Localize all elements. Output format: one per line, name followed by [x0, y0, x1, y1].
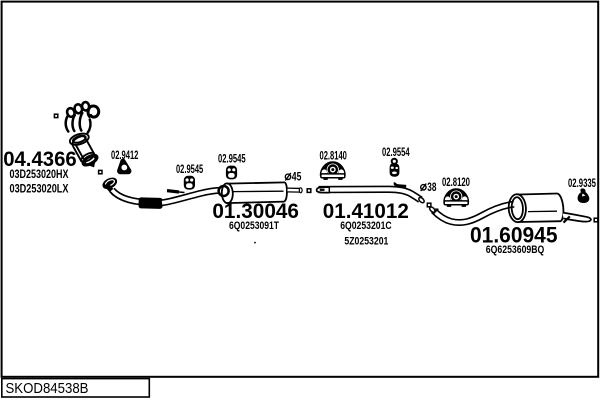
svg-text:02.9554: 02.9554 — [382, 145, 410, 159]
svg-text:03D253020LX: 03D253020LX — [10, 183, 69, 195]
svg-text:04.4366: 04.4366 — [3, 147, 77, 171]
svg-text:38: 38 — [427, 182, 437, 194]
svg-text:6Q0253201C: 6Q0253201C — [340, 220, 392, 232]
svg-text:02.9335: 02.9335 — [568, 176, 596, 190]
svg-text:02.9545: 02.9545 — [176, 162, 203, 176]
svg-text:6Q6253609BQ: 6Q6253609BQ — [486, 244, 545, 256]
svg-text:02.8120: 02.8120 — [442, 175, 470, 189]
svg-text:SKOD84538B: SKOD84538B — [6, 381, 89, 397]
svg-text:02.9545: 02.9545 — [218, 151, 246, 165]
svg-text:5Z0253201: 5Z0253201 — [344, 235, 388, 247]
svg-text:03D253020HX: 03D253020HX — [10, 169, 69, 181]
svg-text:6Q0253091T: 6Q0253091T — [229, 220, 279, 232]
svg-text:45: 45 — [292, 172, 302, 184]
svg-text:02.8140: 02.8140 — [320, 149, 348, 163]
